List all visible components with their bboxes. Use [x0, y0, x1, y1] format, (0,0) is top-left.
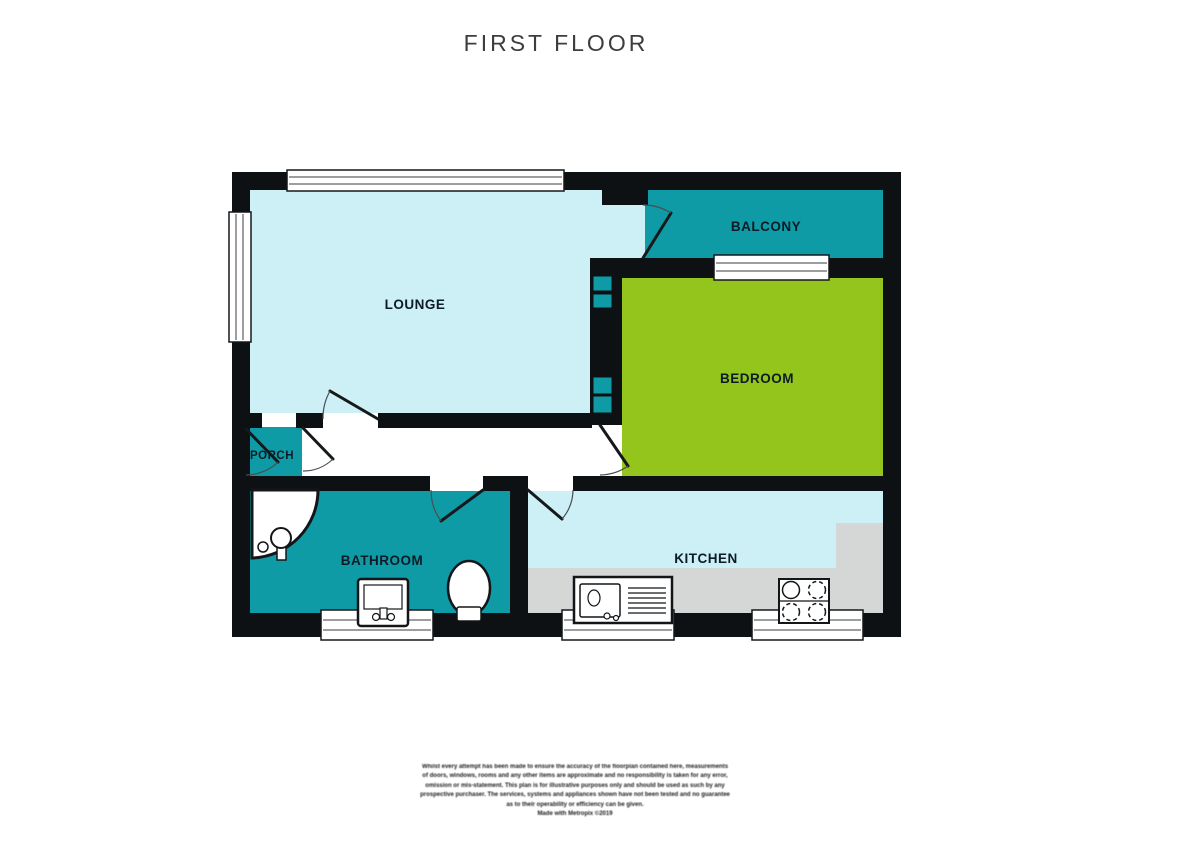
room-label-bedroom: BEDROOM — [720, 371, 794, 386]
room-label-balcony: BALCONY — [731, 219, 801, 234]
door-icon-porch-hall — [303, 428, 333, 471]
disclaimer-line: Whilst every attempt has been made to en… — [355, 763, 795, 772]
wall-lounge-bottom-left — [232, 413, 262, 428]
room-fills — [248, 190, 883, 613]
kitchen-counter-right — [836, 523, 883, 570]
cupboard-icon — [593, 276, 612, 291]
floorplan-canvas: LOUNGE BALCONY BEDROOM PORCH BATHROOM KI… — [0, 0, 1184, 864]
disclaimer-line: omission or mis-statement. This plan is … — [355, 782, 795, 791]
wall-lounge-balcony — [602, 172, 648, 205]
cupboard-icon — [593, 396, 612, 413]
hob-icon — [779, 579, 829, 623]
disclaimer-line: of doors, windows, rooms and any other i… — [355, 772, 795, 781]
wall-bathroom-kitchen — [510, 476, 528, 637]
balcony-door-gap — [628, 205, 645, 258]
cupboard-icon — [593, 377, 612, 394]
wall-lounge-bottom-stub — [296, 413, 323, 428]
room-label-porch: PORCH — [250, 450, 294, 462]
disclaimer-line: Made with Metropix ©2019 — [355, 810, 795, 819]
window-icon-balcony-bedroom — [714, 255, 829, 280]
disclaimer-line: prospective purchaser. The services, sys… — [355, 791, 795, 800]
room-label-lounge: LOUNGE — [385, 297, 446, 312]
kitchen-sink-icon — [574, 577, 672, 623]
disclaimer-text: Whilst every attempt has been made to en… — [355, 763, 795, 819]
disclaimer-line: as to their operability or efficiency ca… — [355, 801, 795, 810]
room-label-bathroom: BATHROOM — [341, 553, 424, 568]
cupboard-icon — [593, 294, 612, 308]
window-icon-lounge-left — [229, 212, 251, 342]
window-icon-lounge-top — [287, 170, 564, 191]
wall-kitchen-top — [573, 476, 883, 491]
wall-right — [883, 172, 901, 637]
wall-lounge-bottom-main — [378, 413, 592, 428]
bath-sink-icon — [358, 579, 408, 626]
room-label-kitchen: KITCHEN — [674, 551, 738, 566]
